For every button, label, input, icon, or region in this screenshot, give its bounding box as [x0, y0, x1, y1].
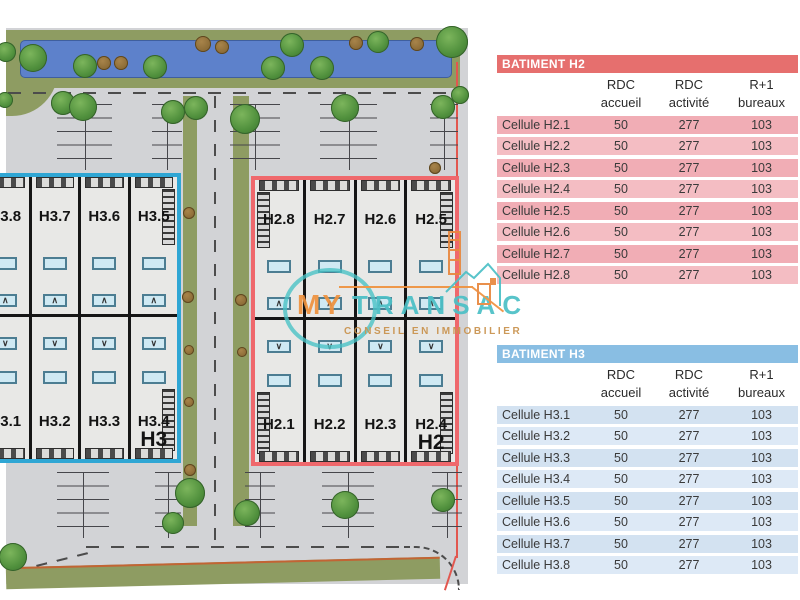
roof-vent-icon: ∨	[92, 337, 116, 350]
column-header: R+1bureaux	[725, 76, 798, 112]
cell-value: 50	[589, 515, 653, 529]
parking-row	[57, 472, 109, 538]
roof-vent-icon: ∧	[142, 294, 166, 307]
roof-skylight-icon	[92, 257, 116, 270]
cell-label: Cellule H3.6	[497, 515, 589, 529]
roof-vent-icon: ∧	[267, 297, 291, 310]
table-row: Cellule H2.850277103	[497, 266, 798, 284]
bush-icon	[184, 397, 194, 407]
roof-vent-icon: ∧	[92, 294, 116, 307]
cell-value: 50	[589, 268, 653, 282]
roof-vent-icon: ∧	[43, 294, 67, 307]
tree-icon	[310, 56, 334, 80]
table-row: Cellule H2.650277103	[497, 223, 798, 241]
table-row: Cellule H3.350277103	[497, 449, 798, 467]
bush-icon	[182, 291, 194, 303]
cell-value: 50	[589, 451, 653, 465]
cell-id-label: H3.5	[131, 208, 178, 225]
table-row: Cellule H3.550277103	[497, 492, 798, 510]
roof-skylight-icon	[419, 260, 443, 273]
warehouse-cell: H3.7 ∧ ∨ H3.2	[32, 177, 79, 459]
roof-vent-icon: ∨	[368, 340, 392, 353]
table-header-row: RDCaccueilRDCactivitéR+1bureaux	[497, 76, 798, 112]
roof-skylight-icon	[318, 374, 342, 387]
cell-value: 277	[653, 161, 725, 175]
roof-skylight-icon	[0, 257, 17, 270]
cell-value: 277	[653, 472, 725, 486]
cell-value: 50	[589, 182, 653, 196]
loading-dock-strip	[361, 180, 401, 191]
cell-label: Cellule H3.7	[497, 537, 589, 551]
roof-skylight-icon	[43, 371, 67, 384]
bush-icon	[235, 294, 247, 306]
tree-icon	[280, 33, 304, 57]
cell-value: 277	[653, 408, 725, 422]
cell-id-label: H2.3	[357, 416, 405, 433]
cell-value: 50	[589, 537, 653, 551]
building-h2: H2.8 ∧ ∨ H2.1 H2.7 ∧ ∨ H2.2 H2.6	[251, 176, 459, 466]
bush-icon	[195, 36, 211, 52]
loading-dock-strip	[135, 177, 174, 188]
tree-icon	[175, 478, 205, 508]
roof-vent-icon: ∨	[142, 337, 166, 350]
cell-id-label: H3.3	[81, 413, 128, 430]
table-row: Cellule H3.150277103	[497, 406, 798, 424]
cell-value: 103	[725, 247, 798, 261]
roof-vent-icon: ∨	[318, 340, 342, 353]
cell-label: Cellule H2.3	[497, 161, 589, 175]
loading-dock-strip	[310, 451, 350, 462]
cell-value: 50	[589, 472, 653, 486]
cell-value: 277	[653, 515, 725, 529]
cell-value: 50	[589, 247, 653, 261]
cell-label: Cellule H3.4	[497, 472, 589, 486]
loading-dock-strip	[85, 448, 124, 459]
cell-id-label: H2.1	[255, 416, 303, 433]
roof-skylight-icon	[0, 371, 17, 384]
cell-value: 277	[653, 182, 725, 196]
tree-icon	[73, 54, 97, 78]
warehouse-cell: H2.6 ∧ ∨ H2.3	[357, 180, 405, 462]
cell-label: Cellule H3.3	[497, 451, 589, 465]
table-row: Cellule H3.650277103	[497, 513, 798, 531]
cell-value: 277	[653, 268, 725, 282]
warehouse-cell: H3.8 ∧ ∨ H3.1	[0, 177, 29, 459]
cell-value: 103	[725, 204, 798, 218]
roof-vent-icon: ∨	[419, 340, 443, 353]
cell-label: Cellule H2.1	[497, 118, 589, 132]
dashed-road-line	[214, 96, 216, 546]
tree-icon	[184, 96, 208, 120]
column-header: RDCaccueil	[589, 366, 653, 402]
cell-value: 50	[589, 118, 653, 132]
cell-value: 103	[725, 472, 798, 486]
cell-label: Cellule H2.2	[497, 139, 589, 153]
table-row: Cellule H3.450277103	[497, 470, 798, 488]
tree-icon	[261, 56, 285, 80]
table-row: Cellule H2.550277103	[497, 202, 798, 220]
cell-value: 103	[725, 537, 798, 551]
cell-value: 277	[653, 225, 725, 239]
cell-value: 103	[725, 494, 798, 508]
loading-dock-strip	[411, 180, 451, 191]
cell-value: 50	[589, 494, 653, 508]
cell-label: Cellule H3.8	[497, 558, 589, 572]
roof-vent-icon: ∧	[318, 297, 342, 310]
warehouse-cell: H3.5 ∧ ∨ H3.4 H3	[131, 177, 178, 459]
loading-dock-strip	[361, 451, 401, 462]
tree-icon	[19, 44, 47, 72]
cell-id-label: H3.8	[0, 208, 29, 225]
column-header: RDCaccueil	[589, 76, 653, 112]
bush-icon	[410, 37, 424, 51]
cell-value: 103	[725, 408, 798, 422]
cell-id-label: H2.8	[255, 211, 303, 228]
tree-icon	[162, 512, 184, 534]
cell-value: 103	[725, 451, 798, 465]
tree-icon	[230, 104, 260, 134]
cell-value: 103	[725, 182, 798, 196]
cell-value: 50	[589, 558, 653, 572]
roof-ridge-line	[0, 314, 177, 317]
cell-value: 277	[653, 558, 725, 572]
warehouse-cell: H2.7 ∧ ∨ H2.2	[306, 180, 354, 462]
roof-vent-icon: ∧	[419, 297, 443, 310]
cell-value: 103	[725, 515, 798, 529]
tree-icon	[431, 488, 455, 512]
cell-id-label: H2.2	[306, 416, 354, 433]
roof-skylight-icon	[419, 374, 443, 387]
cell-value: 50	[589, 161, 653, 175]
loading-dock-strip	[36, 177, 75, 188]
cell-value: 103	[725, 429, 798, 443]
roof-skylight-icon	[142, 257, 166, 270]
loading-dock-strip	[36, 448, 75, 459]
roof-skylight-icon	[267, 374, 291, 387]
tree-icon	[436, 26, 468, 58]
table-row: Cellule H2.150277103	[497, 116, 798, 134]
cell-label: Cellule H2.4	[497, 182, 589, 196]
loading-dock-strip	[135, 448, 174, 459]
cell-label: Cellule H3.2	[497, 429, 589, 443]
cell-value: 277	[653, 494, 725, 508]
cell-value: 103	[725, 118, 798, 132]
table-title-bar: BATIMENT H3	[497, 345, 798, 363]
cell-value: 103	[725, 225, 798, 239]
table-row: Cellule H3.750277103	[497, 535, 798, 553]
roof-vent-icon: ∧	[368, 297, 392, 310]
roof-skylight-icon	[368, 374, 392, 387]
cell-value: 277	[653, 139, 725, 153]
cell-label: Cellule H3.5	[497, 494, 589, 508]
tree-icon	[0, 543, 27, 571]
surface-tables: BATIMENT H2 RDCaccueilRDCactivitéR+1bure…	[497, 55, 798, 574]
cell-id-label: H3.2	[32, 413, 79, 430]
tree-icon	[331, 94, 359, 122]
cell-value: 50	[589, 204, 653, 218]
cell-value: 277	[653, 247, 725, 261]
loading-dock-strip	[411, 451, 451, 462]
tree-icon	[331, 491, 359, 519]
warehouse-cell: H2.8 ∧ ∨ H2.1	[255, 180, 303, 462]
cell-value: 50	[589, 429, 653, 443]
cell-label: Cellule H3.1	[497, 408, 589, 422]
cell-value: 277	[653, 204, 725, 218]
table-batiment-h2: BATIMENT H2 RDCaccueilRDCactivitéR+1bure…	[497, 55, 798, 284]
bush-icon	[183, 207, 195, 219]
cell-label: Cellule H2.5	[497, 204, 589, 218]
table-header-row: RDCaccueilRDCactivitéR+1bureaux	[497, 366, 798, 402]
table-body: Cellule H2.150277103Cellule H2.250277103…	[497, 116, 798, 285]
column-header: RDCactivité	[653, 366, 725, 402]
bush-icon	[114, 56, 128, 70]
cell-label: Cellule H2.6	[497, 225, 589, 239]
cell-label: Cellule H2.7	[497, 247, 589, 261]
bush-icon	[97, 56, 111, 70]
table-body: Cellule H3.150277103Cellule H3.250277103…	[497, 406, 798, 575]
loading-dock-strip	[259, 180, 299, 191]
cell-id-label: H2.5	[407, 211, 455, 228]
roof-skylight-icon	[43, 257, 67, 270]
roof-skylight-icon	[368, 260, 392, 273]
loading-dock-strip	[0, 448, 25, 459]
roof-skylight-icon	[92, 371, 116, 384]
loading-dock-strip	[85, 177, 124, 188]
brochure-page: H3.8 ∧ ∨ H3.1 H3.7 ∧ ∨ H3.2 H3.6	[0, 0, 800, 600]
roadside-verge	[183, 96, 197, 526]
cell-id-label: H3.6	[81, 208, 128, 225]
roof-vent-icon: ∧	[0, 294, 17, 307]
cell-value: 103	[725, 161, 798, 175]
table-row: Cellule H2.350277103	[497, 159, 798, 177]
roof-ridge-line	[255, 317, 455, 320]
table-row: Cellule H3.250277103	[497, 427, 798, 445]
table-row: Cellule H2.250277103	[497, 137, 798, 155]
cell-value: 103	[725, 268, 798, 282]
tree-icon	[234, 500, 260, 526]
cell-label: Cellule H2.8	[497, 268, 589, 282]
loading-dock-strip	[310, 180, 350, 191]
roof-skylight-icon	[318, 260, 342, 273]
cell-value: 277	[653, 118, 725, 132]
tree-icon	[69, 93, 97, 121]
cell-value: 103	[725, 139, 798, 153]
site-plan: H3.8 ∧ ∨ H3.1 H3.7 ∧ ∨ H3.2 H3.6	[0, 0, 472, 600]
warehouse-cell: H2.5 ∧ ∨ H2.4 H2	[407, 180, 455, 462]
roof-skylight-icon	[142, 371, 166, 384]
cell-id-label: H2.7	[306, 211, 354, 228]
building-h3: H3.8 ∧ ∨ H3.1 H3.7 ∧ ∨ H3.2 H3.6	[0, 173, 181, 463]
column-header: RDCactivité	[653, 76, 725, 112]
table-row: Cellule H3.850277103	[497, 556, 798, 574]
bush-icon	[429, 162, 441, 174]
cell-value: 103	[725, 558, 798, 572]
table-batiment-h3: BATIMENT H3 RDCaccueilRDCactivitéR+1bure…	[497, 345, 798, 574]
bush-icon	[215, 40, 229, 54]
bush-icon	[349, 36, 363, 50]
bush-icon	[237, 347, 247, 357]
cell-value: 50	[589, 139, 653, 153]
column-header: R+1bureaux	[725, 366, 798, 402]
roof-vent-icon: ∨	[267, 340, 291, 353]
cell-value: 50	[589, 408, 653, 422]
roof-skylight-icon	[267, 260, 291, 273]
cell-value: 277	[653, 537, 725, 551]
cell-value: 277	[653, 429, 725, 443]
tree-icon	[143, 55, 167, 79]
roof-vent-icon: ∨	[0, 337, 17, 350]
cell-value: 277	[653, 451, 725, 465]
cell-value: 50	[589, 225, 653, 239]
table-row: Cellule H2.450277103	[497, 180, 798, 198]
tree-icon	[451, 86, 469, 104]
table-row: Cellule H2.750277103	[497, 245, 798, 263]
table-title-bar: BATIMENT H2	[497, 55, 798, 73]
loading-dock-strip	[0, 177, 25, 188]
cell-id-label: H2.6	[357, 211, 405, 228]
loading-dock-strip	[259, 451, 299, 462]
tree-icon	[161, 100, 185, 124]
cell-id-label: H3.7	[32, 208, 79, 225]
bush-icon	[184, 345, 194, 355]
warehouse-cell: H3.6 ∧ ∨ H3.3	[81, 177, 128, 459]
cell-id-label: H3.1	[0, 413, 29, 430]
tree-icon	[367, 31, 389, 53]
bush-icon	[184, 464, 196, 476]
roof-vent-icon: ∨	[43, 337, 67, 350]
dashed-road-line	[86, 546, 408, 548]
